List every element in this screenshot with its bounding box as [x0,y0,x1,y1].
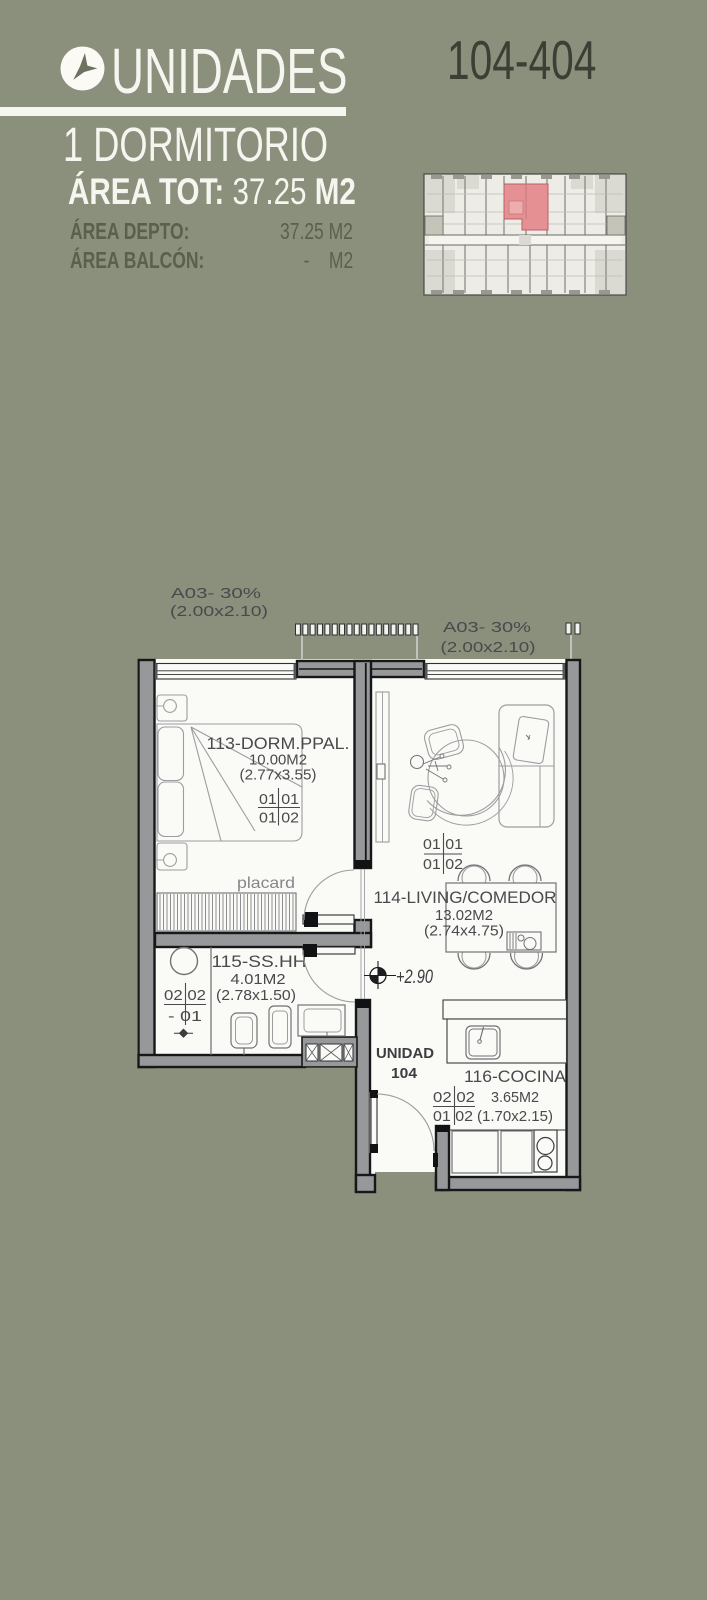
svg-text:UNIDAD: UNIDAD [376,1045,434,1062]
svg-text:116-COCINA: 116-COCINA [464,1068,566,1086]
svg-text:A03- 30%: A03- 30% [443,619,531,636]
svg-text:(2.74x4.75): (2.74x4.75) [424,923,504,940]
svg-text:A03- 30%: A03- 30% [171,585,261,602]
svg-text:placard: placard [237,875,295,892]
svg-text:(2.78x1.50): (2.78x1.50) [216,987,296,1004]
svg-text:13.02M2: 13.02M2 [435,907,493,924]
svg-text:(2.00x2.10): (2.00x2.10) [170,603,268,620]
svg-text:4.01M2: 4.01M2 [231,971,286,988]
svg-text:114-LIVING/COMEDOR: 114-LIVING/COMEDOR [374,889,557,907]
svg-text:104: 104 [391,1065,418,1082]
svg-text:3.65M2: 3.65M2 [491,1089,539,1106]
svg-text:113-DORM.PPAL.: 113-DORM.PPAL. [207,735,350,753]
svg-text:(2.77x3.55): (2.77x3.55) [240,767,317,784]
svg-text:+2.90: +2.90 [396,967,433,988]
svg-text:(1.70x2.15): (1.70x2.15) [477,1108,553,1125]
svg-text:(2.00x2.10): (2.00x2.10) [441,639,536,656]
svg-text:115-SS.HH: 115-SS.HH [212,953,307,971]
svg-text:01 02: 01 02 [433,1108,473,1125]
